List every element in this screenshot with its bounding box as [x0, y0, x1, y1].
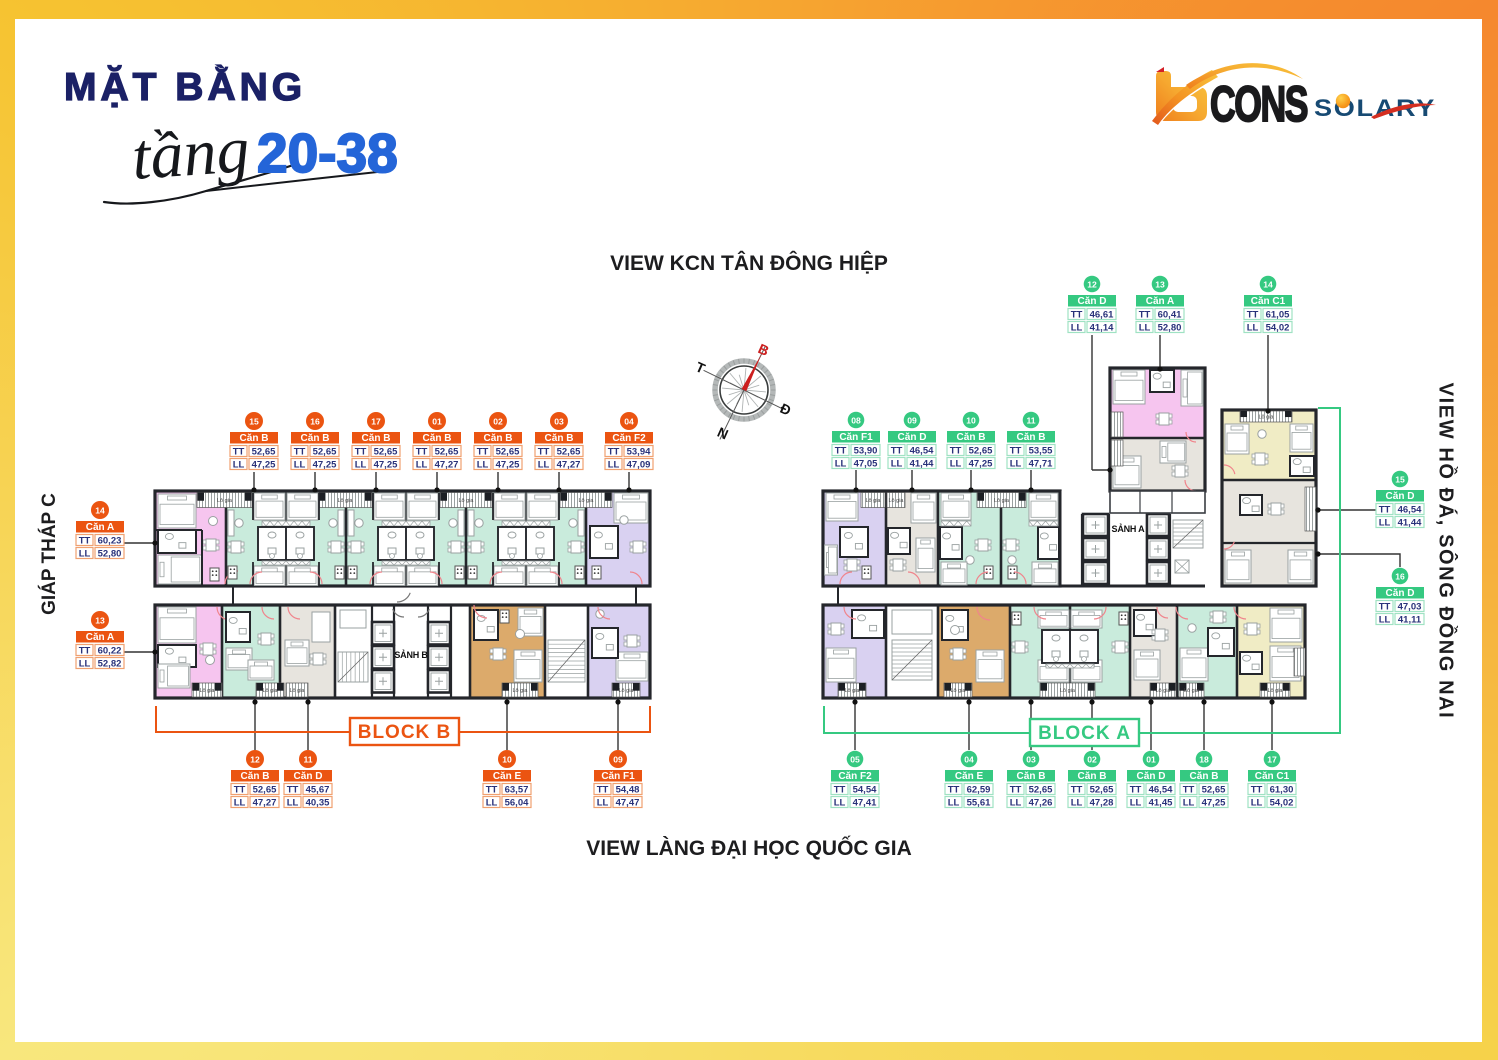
- svg-text:52,65: 52,65: [313, 446, 337, 457]
- svg-text:47,25: 47,25: [313, 459, 337, 470]
- svg-text:TT: TT: [233, 446, 245, 457]
- svg-text:47,27: 47,27: [435, 459, 459, 470]
- svg-text:46,54: 46,54: [1398, 504, 1422, 515]
- svg-text:12: 12: [250, 754, 260, 764]
- svg-text:Căn A: Căn A: [86, 522, 115, 533]
- svg-text:Căn B: Căn B: [301, 433, 330, 444]
- svg-text:Căn D: Căn D: [1078, 296, 1107, 307]
- svg-text:LL: LL: [950, 458, 962, 469]
- svg-text:46,54: 46,54: [1149, 784, 1173, 795]
- svg-text:52,80: 52,80: [1158, 322, 1182, 333]
- svg-text:Căn B: Căn B: [241, 771, 270, 782]
- svg-text:Căn B: Căn B: [362, 433, 391, 444]
- svg-text:01: 01: [432, 416, 442, 426]
- svg-text:Căn B: Căn B: [423, 433, 452, 444]
- svg-text:18: 18: [1199, 754, 1209, 764]
- svg-text:52,82: 52,82: [98, 658, 122, 669]
- svg-text:LL: LL: [477, 459, 489, 470]
- svg-text:LL: LL: [1010, 797, 1022, 808]
- svg-text:Căn F2: Căn F2: [612, 433, 646, 444]
- svg-text:47,27: 47,27: [253, 797, 277, 808]
- svg-text:TT: TT: [79, 535, 91, 546]
- svg-text:Lô gia: Lô gia: [1259, 415, 1275, 421]
- svg-text:11: 11: [1026, 415, 1035, 425]
- svg-text:Lô gia: Lô gia: [1184, 688, 1200, 694]
- svg-text:TT: TT: [287, 784, 299, 795]
- svg-text:61,30: 61,30: [1270, 784, 1294, 795]
- svg-text:Lô gia: Lô gia: [1060, 688, 1076, 694]
- svg-text:Lô gia: Lô gia: [1156, 688, 1172, 694]
- svg-text:03: 03: [1026, 754, 1036, 764]
- svg-text:63,57: 63,57: [505, 784, 529, 795]
- svg-text:Lô gia: Lô gia: [866, 498, 882, 504]
- svg-text:15: 15: [249, 416, 259, 426]
- svg-text:41,44: 41,44: [910, 458, 934, 469]
- svg-text:54,48: 54,48: [616, 784, 640, 795]
- svg-text:LL: LL: [1379, 517, 1391, 528]
- svg-text:60,23: 60,23: [98, 535, 122, 546]
- svg-text:LL: LL: [1183, 797, 1195, 808]
- svg-text:LL: LL: [1251, 797, 1263, 808]
- svg-text:10: 10: [966, 415, 976, 425]
- svg-text:56,04: 56,04: [505, 797, 529, 808]
- svg-text:61,05: 61,05: [1266, 309, 1290, 320]
- svg-text:TT: TT: [1139, 309, 1151, 320]
- svg-text:Căn D: Căn D: [294, 771, 323, 782]
- svg-text:Lô gia: Lô gia: [619, 688, 635, 694]
- svg-text:Căn B: Căn B: [484, 433, 513, 444]
- svg-text:Căn B: Căn B: [240, 433, 269, 444]
- svg-text:Căn B: Căn B: [545, 433, 574, 444]
- svg-text:47,25: 47,25: [1202, 797, 1226, 808]
- svg-text:Căn E: Căn E: [955, 771, 984, 782]
- svg-text:TT: TT: [835, 445, 847, 456]
- svg-text:16: 16: [310, 416, 320, 426]
- svg-text:LL: LL: [597, 797, 609, 808]
- svg-text:03: 03: [554, 416, 564, 426]
- svg-text:TT: TT: [597, 784, 609, 795]
- svg-text:47,09: 47,09: [627, 459, 651, 470]
- svg-text:52,65: 52,65: [253, 784, 277, 795]
- svg-text:Lô gia: Lô gia: [200, 688, 216, 694]
- svg-text:Căn F1: Căn F1: [839, 432, 873, 443]
- svg-text:TT: TT: [1071, 309, 1083, 320]
- svg-text:TT: TT: [79, 645, 91, 656]
- svg-text:T: T: [693, 359, 708, 377]
- svg-text:11: 11: [303, 754, 312, 764]
- svg-text:Lô gia: Lô gia: [579, 498, 595, 504]
- svg-text:LL: LL: [79, 548, 91, 559]
- svg-text:17: 17: [371, 416, 381, 426]
- svg-text:Căn A: Căn A: [1146, 296, 1175, 307]
- svg-text:04: 04: [624, 416, 634, 426]
- svg-text:47,03: 47,03: [1398, 601, 1422, 612]
- svg-text:TT: TT: [234, 784, 246, 795]
- svg-text:41,14: 41,14: [1090, 322, 1114, 333]
- svg-text:LL: LL: [486, 797, 498, 808]
- svg-text:52,65: 52,65: [1029, 784, 1053, 795]
- svg-text:Lô gia: Lô gia: [889, 498, 905, 504]
- svg-text:47,28: 47,28: [1090, 797, 1114, 808]
- svg-text:Lô gia: Lô gia: [338, 498, 354, 504]
- svg-text:15: 15: [1395, 474, 1405, 484]
- svg-text:02: 02: [1087, 754, 1097, 764]
- svg-text:46,54: 46,54: [910, 445, 934, 456]
- svg-text:Lô gia: Lô gia: [845, 688, 861, 694]
- svg-text:Căn B: Căn B: [1190, 771, 1219, 782]
- svg-text:52,65: 52,65: [374, 446, 398, 457]
- svg-text:LL: LL: [834, 797, 846, 808]
- svg-text:LL: LL: [538, 459, 550, 470]
- svg-text:47,25: 47,25: [374, 459, 398, 470]
- svg-text:Căn D: Căn D: [1137, 771, 1166, 782]
- svg-text:47,25: 47,25: [969, 458, 993, 469]
- svg-text:55,61: 55,61: [967, 797, 991, 808]
- svg-text:04: 04: [964, 754, 974, 764]
- svg-text:TT: TT: [294, 446, 306, 457]
- svg-text:Lô gia: Lô gia: [459, 498, 475, 504]
- svg-text:Đ: Đ: [778, 400, 794, 419]
- svg-text:TT: TT: [1247, 309, 1259, 320]
- svg-text:Lô gia: Lô gia: [994, 498, 1010, 504]
- svg-text:Lô gia: Lô gia: [263, 688, 279, 694]
- svg-text:52,65: 52,65: [969, 445, 993, 456]
- svg-text:Lô gia: Lô gia: [217, 498, 233, 504]
- svg-text:Căn C1: Căn C1: [1255, 771, 1290, 782]
- svg-text:53,55: 53,55: [1029, 445, 1053, 456]
- svg-text:54,02: 54,02: [1266, 322, 1290, 333]
- svg-text:13: 13: [1155, 279, 1165, 289]
- svg-text:54,54: 54,54: [853, 784, 877, 795]
- svg-text:47,27: 47,27: [557, 459, 581, 470]
- svg-text:60,22: 60,22: [98, 645, 122, 656]
- svg-text:LL: LL: [1071, 797, 1083, 808]
- svg-text:52,65: 52,65: [557, 446, 581, 457]
- svg-text:TT: TT: [950, 445, 962, 456]
- svg-text:62,59: 62,59: [967, 784, 991, 795]
- svg-text:TT: TT: [1251, 784, 1263, 795]
- svg-text:Căn D: Căn D: [1386, 491, 1415, 502]
- svg-text:47,25: 47,25: [252, 459, 276, 470]
- svg-text:LL: LL: [233, 459, 245, 470]
- svg-text:Căn B: Căn B: [1017, 432, 1046, 443]
- svg-text:52,65: 52,65: [1090, 784, 1114, 795]
- svg-text:09: 09: [613, 754, 623, 764]
- svg-text:LL: LL: [1247, 322, 1259, 333]
- svg-text:LL: LL: [234, 797, 246, 808]
- svg-text:Lô gia: Lô gia: [1268, 688, 1284, 694]
- svg-text:BLOCK A: BLOCK A: [1038, 723, 1131, 744]
- svg-text:LL: LL: [608, 459, 620, 470]
- svg-text:41,45: 41,45: [1149, 797, 1173, 808]
- svg-text:47,41: 47,41: [853, 797, 877, 808]
- svg-text:BLOCK B: BLOCK B: [358, 722, 452, 743]
- svg-text:46,61: 46,61: [1090, 309, 1114, 320]
- svg-text:TT: TT: [834, 784, 846, 795]
- svg-text:LL: LL: [1139, 322, 1151, 333]
- svg-text:Căn D: Căn D: [898, 432, 927, 443]
- svg-text:02: 02: [493, 416, 503, 426]
- svg-text:TT: TT: [416, 446, 428, 457]
- svg-text:B: B: [756, 340, 772, 359]
- svg-text:Lô gia: Lô gia: [513, 688, 529, 694]
- svg-text:LL: LL: [294, 459, 306, 470]
- svg-text:LL: LL: [287, 797, 299, 808]
- svg-text:Căn E: Căn E: [493, 771, 522, 782]
- svg-text:TT: TT: [538, 446, 550, 457]
- svg-text:TT: TT: [1183, 784, 1195, 795]
- svg-text:SẢNH B: SẢNH B: [394, 649, 428, 660]
- svg-text:TT: TT: [1071, 784, 1083, 795]
- svg-text:SẢNH A: SẢNH A: [1112, 523, 1146, 534]
- svg-text:Căn F1: Căn F1: [601, 771, 635, 782]
- svg-text:LL: LL: [416, 459, 428, 470]
- svg-text:TT: TT: [1010, 445, 1022, 456]
- svg-text:60,41: 60,41: [1158, 309, 1182, 320]
- svg-text:Lô gia: Lô gia: [951, 688, 967, 694]
- svg-text:53,90: 53,90: [854, 445, 878, 456]
- svg-text:41,11: 41,11: [1398, 614, 1422, 625]
- svg-text:09: 09: [907, 415, 917, 425]
- svg-text:52,65: 52,65: [252, 446, 276, 457]
- svg-text:LL: LL: [948, 797, 960, 808]
- svg-text:LL: LL: [1010, 458, 1022, 469]
- svg-text:Căn D: Căn D: [1386, 588, 1415, 599]
- svg-text:TT: TT: [477, 446, 489, 457]
- svg-text:TT: TT: [948, 784, 960, 795]
- svg-text:LL: LL: [1379, 614, 1391, 625]
- svg-text:13: 13: [95, 615, 105, 625]
- svg-text:TT: TT: [486, 784, 498, 795]
- svg-text:08: 08: [851, 415, 861, 425]
- svg-text:Căn B: Căn B: [1078, 771, 1107, 782]
- svg-text:12: 12: [1087, 279, 1097, 289]
- svg-text:45,67: 45,67: [306, 784, 330, 795]
- svg-text:16: 16: [1395, 571, 1405, 581]
- svg-text:TT: TT: [1130, 784, 1142, 795]
- svg-text:Căn B: Căn B: [1017, 771, 1046, 782]
- svg-text:LL: LL: [355, 459, 367, 470]
- svg-text:LL: LL: [835, 458, 847, 469]
- svg-text:40,35: 40,35: [306, 797, 330, 808]
- svg-text:52,65: 52,65: [496, 446, 520, 457]
- svg-text:Căn F2: Căn F2: [838, 771, 872, 782]
- svg-text:Căn A: Căn A: [86, 632, 115, 643]
- svg-text:52,80: 52,80: [98, 548, 122, 559]
- svg-text:47,26: 47,26: [1029, 797, 1053, 808]
- svg-text:14: 14: [95, 505, 105, 515]
- svg-text:LL: LL: [1130, 797, 1142, 808]
- svg-text:17: 17: [1267, 754, 1277, 764]
- svg-text:41,44: 41,44: [1398, 517, 1422, 528]
- svg-text:LL: LL: [891, 458, 903, 469]
- svg-text:47,05: 47,05: [854, 458, 878, 469]
- svg-text:TT: TT: [891, 445, 903, 456]
- svg-text:01: 01: [1146, 754, 1156, 764]
- svg-text:LL: LL: [79, 658, 91, 669]
- svg-text:52,65: 52,65: [1202, 784, 1226, 795]
- svg-text:47,25: 47,25: [496, 459, 520, 470]
- svg-text:14: 14: [1263, 279, 1273, 289]
- svg-text:TT: TT: [1010, 784, 1022, 795]
- svg-text:TT: TT: [608, 446, 620, 457]
- svg-text:53,94: 53,94: [627, 446, 651, 457]
- svg-text:N: N: [715, 424, 731, 443]
- svg-text:10: 10: [502, 754, 512, 764]
- svg-text:05: 05: [850, 754, 860, 764]
- svg-text:Lô gia: Lô gia: [290, 688, 306, 694]
- svg-text:47,71: 47,71: [1029, 458, 1053, 469]
- svg-text:TT: TT: [1379, 504, 1391, 515]
- svg-text:52,65: 52,65: [435, 446, 459, 457]
- svg-text:LL: LL: [1071, 322, 1083, 333]
- svg-text:Căn B: Căn B: [957, 432, 986, 443]
- svg-text:47,47: 47,47: [616, 797, 640, 808]
- svg-text:TT: TT: [355, 446, 367, 457]
- svg-text:Căn C1: Căn C1: [1251, 296, 1286, 307]
- svg-text:54,02: 54,02: [1270, 797, 1294, 808]
- svg-text:TT: TT: [1379, 601, 1391, 612]
